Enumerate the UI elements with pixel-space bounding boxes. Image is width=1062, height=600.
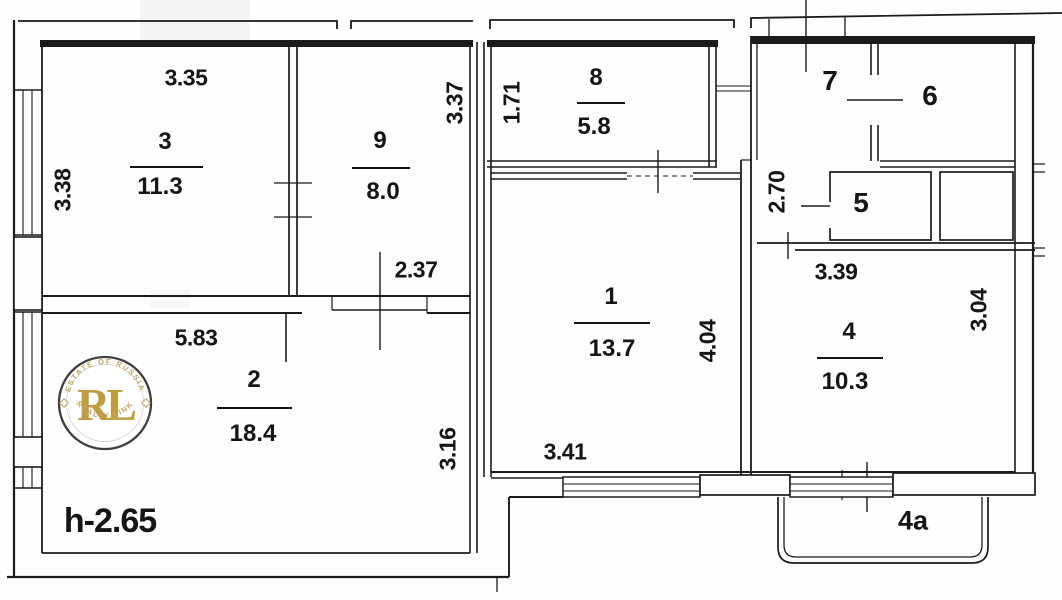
room-9-number: 9: [373, 129, 386, 153]
floor-plan-page: RL ESTATE OF RUSSIA REALTY LINK 3 11.3 9…: [0, 0, 1062, 600]
room-6-number: 6: [922, 82, 938, 110]
dim-room1-width: 3.41: [544, 441, 587, 464]
room-8-number: 8: [589, 66, 602, 90]
dim-hallway-length: 2.70: [766, 171, 789, 214]
interior-walls: [42, 36, 1035, 553]
room-4-area: 10.3: [822, 370, 869, 394]
dim-room9-width: 2.37: [395, 259, 438, 282]
room-5-number: 5: [853, 189, 869, 217]
room-8-area: 5.8: [577, 115, 610, 139]
dim-room1-depth: 4.04: [697, 320, 720, 363]
room-1-area: 13.7: [589, 337, 636, 361]
bottom-windows: [563, 473, 1035, 497]
dim-room4-depth: 3.04: [968, 289, 991, 332]
room-1-number: 1: [604, 285, 617, 309]
dim-room3-width: 3.35: [165, 67, 208, 90]
room-9-area: 8.0: [366, 180, 399, 204]
dim-room2-depth: 3.16: [437, 428, 460, 471]
room-2-number: 2: [247, 368, 260, 392]
room-3-number: 3: [158, 130, 171, 154]
agency-logo: RL ESTATE OF RUSSIA REALTY LINK: [59, 357, 151, 449]
dim-room2-width: 5.83: [175, 327, 218, 350]
ceiling-height-label: h-2.65: [64, 504, 156, 538]
room-2-area: 18.4: [230, 422, 277, 446]
room-7-number: 7: [822, 67, 838, 95]
dim-room9-depth: 3.37: [444, 82, 467, 125]
room-4-number: 4: [842, 320, 855, 344]
balcony-label: 4a: [898, 508, 928, 535]
dim-room3-depth: 3.38: [52, 169, 75, 212]
fraction-lines: [130, 103, 883, 408]
balcony-outline: [778, 497, 988, 563]
room-3-area: 11.3: [137, 175, 182, 199]
dim-room4-width: 3.39: [815, 261, 858, 284]
left-wall-windows: [14, 42, 42, 553]
dim-room8-width: 1.71: [501, 82, 524, 125]
